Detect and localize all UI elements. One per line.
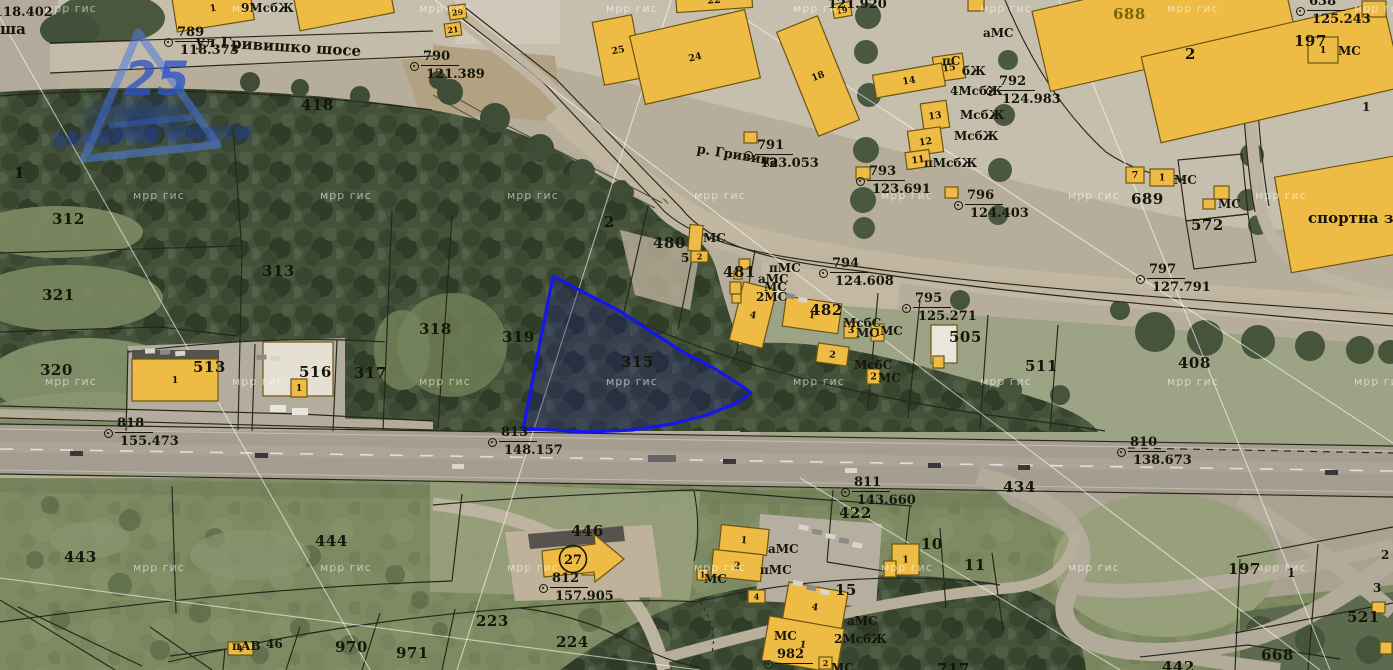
building: 7: [1126, 167, 1144, 183]
building-number: 12: [918, 136, 933, 149]
building: 1: [871, 324, 884, 341]
building: 2: [819, 657, 832, 669]
building: 1: [697, 569, 708, 580]
building-number: 1: [172, 375, 179, 386]
building: [1380, 642, 1392, 654]
building-number: 1: [296, 383, 303, 394]
building-number: 1: [1159, 173, 1166, 184]
building-number: 7: [1132, 170, 1139, 181]
building-number: 11: [911, 154, 926, 167]
building-number: 2: [733, 560, 741, 572]
building-number: 4: [754, 592, 760, 602]
building-number: 1: [740, 535, 748, 547]
building: 2: [691, 251, 708, 262]
building: [933, 356, 944, 368]
building: 3: [844, 322, 858, 338]
building-number: 22: [707, 0, 721, 7]
building: 21: [444, 22, 462, 37]
building: [945, 187, 958, 198]
building: [1203, 199, 1215, 209]
building: [734, 271, 742, 279]
building: [1214, 186, 1229, 199]
building: 1: [291, 379, 307, 397]
building: 1: [228, 642, 253, 655]
building: 11: [905, 149, 931, 169]
agency-watermark: 25 ЗАХАРОВ ИМОТИ: [60, 26, 260, 176]
building-number: 19: [836, 4, 849, 16]
building: 2: [867, 369, 880, 384]
building: 2: [816, 343, 849, 366]
building: [968, 0, 984, 11]
building-number: 1: [238, 644, 244, 654]
building-number: 2: [697, 252, 703, 262]
building: [744, 132, 757, 143]
building: 1: [1150, 169, 1174, 186]
logo-number: 25: [124, 52, 189, 107]
building-number: 3: [848, 325, 855, 336]
building: [1372, 602, 1385, 613]
building: [1362, 1, 1386, 17]
building: 1: [132, 359, 218, 401]
building-number: 29: [451, 6, 464, 18]
building: [739, 259, 750, 269]
building: [884, 561, 896, 577]
building: [732, 294, 741, 303]
building: [730, 282, 741, 294]
building-number: 2: [870, 372, 877, 383]
building-number: 1: [902, 555, 909, 566]
building-number: 1: [874, 328, 881, 339]
building-number: 1: [700, 570, 706, 580]
building: 4: [748, 590, 765, 603]
building: 1: [1308, 37, 1338, 63]
building-number: 1: [1320, 45, 1327, 56]
circled-27-label: 27: [564, 553, 582, 568]
building-number: 15: [942, 62, 957, 75]
building: [688, 224, 703, 251]
building: 19: [832, 2, 852, 19]
building: 2: [711, 549, 764, 581]
building: 13: [920, 100, 950, 130]
map-container[interactable]: 1292125242218191514131211711112413122212…: [0, 0, 1393, 670]
building: [856, 167, 870, 179]
building-number: 13: [928, 110, 943, 123]
building-number: 14: [902, 75, 917, 88]
building-number: 2: [823, 658, 829, 668]
building: 29: [448, 4, 467, 20]
building-number: 21: [447, 24, 459, 35]
